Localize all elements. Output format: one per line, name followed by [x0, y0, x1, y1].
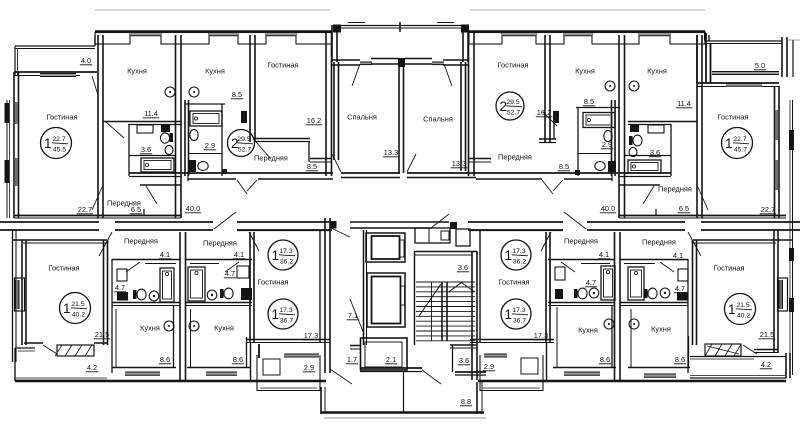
svg-text:Гостиная: Гостиная: [257, 278, 288, 287]
svg-text:3.6: 3.6: [458, 263, 468, 272]
svg-text:36.2: 36.2: [280, 258, 293, 265]
svg-text:8.6: 8.6: [675, 355, 685, 364]
svg-text:1: 1: [63, 301, 71, 316]
svg-text:17.3: 17.3: [534, 331, 548, 340]
svg-text:16.2: 16.2: [537, 108, 551, 117]
svg-text:21.5: 21.5: [71, 301, 84, 308]
svg-text:40.0: 40.0: [601, 204, 615, 213]
svg-text:2.9: 2.9: [602, 140, 612, 149]
svg-text:Передняя: Передняя: [564, 237, 598, 246]
svg-text:11.4: 11.4: [677, 99, 691, 108]
svg-text:3.6: 3.6: [650, 148, 660, 157]
svg-text:17.3: 17.3: [279, 307, 292, 314]
svg-text:Гостиная: Гостиная: [498, 278, 529, 287]
svg-text:Передняя: Передняя: [642, 238, 676, 247]
svg-text:1: 1: [505, 307, 513, 322]
svg-text:6.5: 6.5: [131, 205, 141, 214]
svg-text:8.5: 8.5: [584, 97, 594, 106]
svg-text:29.5: 29.5: [237, 136, 250, 143]
svg-text:1: 1: [272, 248, 280, 263]
svg-text:Передняя: Передняя: [498, 153, 532, 162]
svg-text:17.3: 17.3: [512, 248, 525, 255]
svg-text:4.7: 4.7: [225, 269, 235, 278]
svg-text:8.5: 8.5: [307, 162, 317, 171]
svg-text:13.3: 13.3: [384, 148, 398, 157]
svg-text:8.6: 8.6: [233, 355, 243, 364]
svg-text:22.7: 22.7: [733, 136, 746, 143]
svg-text:36.7: 36.7: [513, 317, 526, 324]
svg-text:22.7: 22.7: [761, 205, 775, 214]
svg-text:4.2: 4.2: [87, 363, 97, 372]
svg-text:52.7: 52.7: [507, 109, 520, 116]
svg-text:45.7: 45.7: [734, 146, 747, 153]
svg-text:Передняя: Передняя: [124, 237, 158, 246]
svg-text:4.7: 4.7: [115, 283, 125, 292]
svg-text:4.1: 4.1: [234, 250, 244, 259]
svg-text:6.5: 6.5: [679, 204, 689, 213]
svg-text:11.4: 11.4: [144, 109, 158, 118]
svg-text:4.0: 4.0: [81, 56, 91, 65]
svg-text:7.1: 7.1: [348, 311, 358, 320]
svg-text:40.0: 40.0: [186, 204, 200, 213]
svg-text:Кухня: Кухня: [647, 67, 667, 76]
svg-text:21.5: 21.5: [95, 330, 109, 339]
svg-text:2.1: 2.1: [386, 355, 396, 364]
svg-text:5.0: 5.0: [755, 61, 765, 70]
svg-text:1: 1: [505, 248, 513, 263]
svg-text:Гостиная: Гостиная: [267, 61, 298, 70]
svg-text:1.7: 1.7: [347, 355, 357, 364]
svg-text:Кухня: Кухня: [140, 324, 160, 333]
svg-text:Кухня: Кухня: [205, 67, 225, 76]
svg-text:Гостиная: Гостиная: [713, 264, 744, 273]
svg-text:21.5: 21.5: [760, 330, 774, 339]
svg-text:16.2: 16.2: [307, 116, 321, 125]
svg-text:1: 1: [44, 136, 52, 151]
svg-text:Спальня: Спальня: [347, 113, 377, 122]
svg-text:22.7: 22.7: [52, 136, 65, 143]
svg-text:Гостиная: Гостиная: [48, 264, 79, 273]
svg-text:21.5: 21.5: [736, 302, 749, 309]
svg-text:Кухня: Кухня: [578, 326, 598, 335]
svg-text:1: 1: [725, 136, 733, 151]
svg-text:17.3: 17.3: [279, 248, 292, 255]
svg-text:8.6: 8.6: [600, 355, 610, 364]
svg-text:Передняя: Передняя: [203, 239, 237, 248]
svg-text:Гостиная: Гостиная: [46, 113, 77, 122]
svg-text:52.7: 52.7: [238, 146, 251, 153]
svg-text:8.5: 8.5: [559, 162, 569, 171]
svg-text:4.7: 4.7: [675, 284, 685, 293]
svg-text:Спальня: Спальня: [423, 115, 453, 124]
svg-text:Передняя: Передняя: [254, 154, 288, 163]
svg-text:36.7: 36.7: [280, 317, 293, 324]
svg-text:4.1: 4.1: [160, 250, 170, 259]
svg-text:4.7: 4.7: [586, 278, 596, 287]
svg-text:22.7: 22.7: [78, 205, 92, 214]
svg-text:Гостиная: Гостиная: [717, 113, 748, 122]
svg-text:Кухня: Кухня: [575, 67, 595, 76]
svg-text:2.9: 2.9: [304, 363, 314, 372]
svg-text:8.8: 8.8: [461, 397, 471, 406]
svg-text:4.2: 4.2: [761, 360, 771, 369]
svg-text:45.5: 45.5: [53, 146, 66, 153]
svg-text:36.2: 36.2: [513, 258, 526, 265]
svg-text:17.3: 17.3: [512, 307, 525, 314]
svg-text:4.1: 4.1: [599, 250, 609, 259]
svg-text:4.1: 4.1: [673, 251, 683, 260]
svg-text:Кухня: Кухня: [651, 325, 671, 334]
svg-text:2.9: 2.9: [484, 362, 494, 371]
svg-text:2.9: 2.9: [205, 141, 215, 150]
svg-text:40.2: 40.2: [737, 312, 750, 319]
svg-text:Кухня: Кухня: [214, 324, 234, 333]
svg-text:29.5: 29.5: [506, 99, 519, 106]
svg-text:40.2: 40.2: [72, 311, 85, 318]
svg-text:3.6: 3.6: [459, 356, 469, 365]
svg-text:3.6: 3.6: [141, 145, 151, 154]
svg-text:8.6: 8.6: [160, 355, 170, 364]
svg-text:1: 1: [728, 302, 736, 317]
svg-text:Передняя: Передняя: [658, 185, 692, 194]
svg-text:17.3: 17.3: [304, 331, 318, 340]
svg-text:13.3: 13.3: [452, 159, 466, 168]
svg-text:Кухня: Кухня: [127, 67, 147, 76]
svg-text:1: 1: [272, 307, 280, 322]
svg-text:8.5: 8.5: [232, 90, 242, 99]
svg-text:Гостиная: Гостиная: [497, 61, 528, 70]
